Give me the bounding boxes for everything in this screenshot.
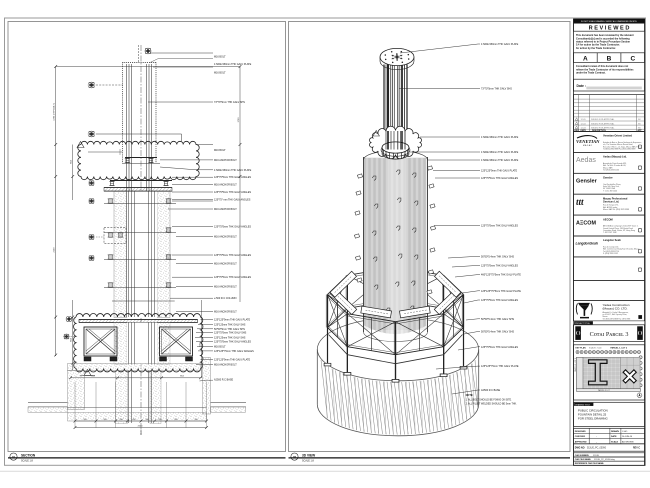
svg-text:DRAWN: DRAWN xyxy=(611,430,619,433)
svg-text:125*75*5mm THK GALV ANGLES: 125*75*5mm THK GALV ANGLES xyxy=(214,176,251,179)
svg-text:M16 ANCHOR BOLT: M16 ANCHOR BOLT xyxy=(214,285,237,288)
svg-text:12-04: 12-04 xyxy=(581,123,587,125)
svg-text:PARCEL 1, LOT 2: PARCEL 1, LOT 2 xyxy=(611,346,628,349)
svg-text:CAD FILE NAME:: CAD FILE NAME: xyxy=(575,458,592,461)
svg-text:4 SIDE 950mm THK GALV PLATE: 4 SIDE 950mm THK GALV PLATE xyxy=(214,169,252,172)
svg-text:Venetian Orient Limited: Venetian Orient Limited xyxy=(603,134,632,138)
svg-text:VENETIAN: VENETIAN xyxy=(576,139,600,144)
svg-text:F: (853) 2833 1532: F: (853) 2833 1532 xyxy=(603,253,618,255)
svg-text:M16 BOLT: M16 BOLT xyxy=(214,56,226,59)
svg-text:C.HO: C.HO xyxy=(622,431,628,433)
svg-text:4 SIDE 950mm THK GALV PLATE: 4 SIDE 950mm THK GALV PLATE xyxy=(481,159,519,162)
svg-text:125*75*5mm THK GALV ANGLES: 125*75*5mm THK GALV ANGLES xyxy=(214,226,251,229)
svg-text:125*75*5mm THK GALV ANGLES: 125*75*5mm THK GALV ANGLES xyxy=(481,264,518,267)
svg-text:2190: 2190 xyxy=(54,247,56,253)
svg-text:Aedas: Aedas xyxy=(576,157,596,164)
svg-text:APPROVED: APPROVED xyxy=(575,440,587,443)
svg-text:460*125*75*5mm THK GALV PLATE: 460*125*75*5mm THK GALV PLATE xyxy=(481,274,521,277)
svg-text:ISSUED FOR APPROVAL: ISSUED FOR APPROVAL xyxy=(591,122,615,125)
svg-text:AS SHOWN: AS SHOWN xyxy=(622,440,634,443)
svg-text:125*125*9mm THK GALV PLATE: 125*125*9mm THK GALV PLATE xyxy=(214,358,251,361)
svg-text:1760: 1760 xyxy=(238,117,240,123)
svg-text:125*125*9mm THK GALV PLATE: 125*125*9mm THK GALV PLATE xyxy=(481,169,518,172)
svg-text:Tel:(853) 2882 8888 Fax:(85: Tel:(853) 2882 8888 Fax:(853) 2882 8889 xyxy=(603,149,635,151)
svg-text:50*50*5.4mm THK GALV SHS: 50*50*5.4mm THK GALV SHS xyxy=(481,331,514,334)
svg-text:125*125*75mm THK GALV ANGLES: 125*125*75mm THK GALV ANGLES xyxy=(214,350,254,353)
svg-text:3D VIEW: 3D VIEW xyxy=(302,453,315,457)
svg-text:A2500 R.C BASE: A2500 R.C BASE xyxy=(481,389,500,392)
svg-text:125*75*5mm THK GALV ANGLES: 125*75*5mm THK GALV ANGLES xyxy=(214,191,251,194)
svg-text:AΞCOM: AΞCOM xyxy=(576,220,596,226)
svg-text:R E V I E W E D: R E V I E W E D xyxy=(589,25,630,31)
svg-text:ISSUED FOR APPROVAL: ISSUED FOR APPROVAL xyxy=(591,118,615,121)
svg-text:125*75*5mm THK GALV ANGLES: 125*75*5mm THK GALV ANGLES xyxy=(481,299,518,302)
svg-text:Date :: Date : xyxy=(577,84,586,88)
svg-text:LangdonSeah: LangdonSeah xyxy=(576,241,598,245)
svg-text:125*75* mm THK GALV ANGLES: 125*75* mm THK GALV ANGLES xyxy=(214,198,251,201)
svg-text:Aedas (Macau) Ltd.: Aedas (Macau) Ltd. xyxy=(603,155,627,159)
svg-text:under the Trade Contract.: under the Trade Contract. xyxy=(576,72,606,75)
svg-text:125*75*5mm THK GALV SHS: 125*75*5mm THK GALV SHS xyxy=(214,332,247,335)
svg-text:Gensler: Gensler xyxy=(576,179,598,185)
svg-text:73*73*5mm THK GALV SHS: 73*73*5mm THK GALV SHS xyxy=(214,101,245,104)
svg-text:4 SIDE 950mm THK GALV PLATE: 4 SIDE 950mm THK GALV PLATE xyxy=(214,63,252,66)
svg-text:AECOM: AECOM xyxy=(603,217,613,221)
svg-text:A2500 R.C BASE: A2500 R.C BASE xyxy=(214,378,233,381)
svg-text:T: 852 2587 1188: T: 852 2587 1188 xyxy=(603,232,616,234)
svg-text:ttt: ttt xyxy=(576,197,584,207)
svg-text:A: A xyxy=(583,55,588,62)
svg-text:50*50*5.4mm THK GALV SHS: 50*50*5.4mm THK GALV SHS xyxy=(481,318,514,321)
svg-text:125*125*75mm THK GALV PLATE: 125*125*75mm THK GALV PLATE xyxy=(481,365,519,368)
svg-text:4 SIDE 950mm THK GALV PLATE: 4 SIDE 950mm THK GALV PLATE xyxy=(481,136,519,139)
svg-text:4 SIDE 950mm THK GALV PLATE: 4 SIDE 950mm THK GALV PLATE xyxy=(481,151,519,154)
svg-text:(Macau) CO. LTD.: (Macau) CO. LTD. xyxy=(603,307,628,311)
svg-text:M16 BOLT: M16 BOLT xyxy=(214,72,226,75)
svg-text:T: 1 212 492 1400: T: 1 212 492 1400 xyxy=(603,190,617,192)
svg-text:1786 (TYP BOLT): 1786 (TYP BOLT) xyxy=(54,103,56,121)
svg-text:SCALE 1:8: SCALE 1:8 xyxy=(302,460,314,463)
svg-text:DO NOT SCALE DRAWING. VERIFY A: DO NOT SCALE DRAWING. VERIFY ALL DIMENSI… xyxy=(581,20,638,23)
svg-text:14-JUN-10: 14-JUN-10 xyxy=(622,436,633,438)
svg-text:511UE_PC_05090.dwg: 511UE_PC_05090.dwg xyxy=(594,459,615,461)
svg-text:2500: 2500 xyxy=(138,425,144,427)
svg-text:Services Ltd.: Services Ltd. xyxy=(603,200,619,204)
svg-text:1. ALL BOLT SHOULD BE FIXING O: 1. ALL BOLT SHOULD BE FIXING ON SITE. xyxy=(466,399,512,402)
svg-text:50*50*5mm THK GALV SHS: 50*50*5mm THK GALV SHS xyxy=(214,328,245,331)
svg-text:73*73*5mm THK GALV SHS: 73*73*5mm THK GALV SHS xyxy=(481,88,512,91)
svg-text:M16 BOLT: M16 BOLT xyxy=(214,346,226,349)
svg-text:M16 ANCHOR BOLT: M16 ANCHOR BOLT xyxy=(214,263,237,266)
svg-text:125*125*9mm THK GALV PLATE: 125*125*9mm THK GALV PLATE xyxy=(214,319,251,322)
svg-text:MACAO: MACAO xyxy=(583,144,593,147)
svg-text:125*125mm THK GALV SHS: 125*125mm THK GALV SHS xyxy=(214,323,246,326)
svg-text:Macau SAR Tel: (853) 2878 3: Macau SAR Tel: (853) 2878 3988 xyxy=(603,208,629,211)
svg-text:PARCEL 1, LOT 1: PARCEL 1, LOT 1 xyxy=(574,358,577,372)
svg-text:for action by the Trade C: for action by the Trade Contractor. xyxy=(576,47,616,50)
svg-text:125*75*5mm THK GALV ANGLES: 125*75*5mm THK GALV ANGLES xyxy=(214,341,251,344)
svg-text:DRAWING TITLE:: DRAWING TITLE: xyxy=(575,403,591,406)
svg-text:B: B xyxy=(607,55,612,62)
svg-text:FOR STEEL DRAWING: FOR STEEL DRAWING xyxy=(578,416,608,420)
svg-text:125*75*5mm THK GALV ANGLES: 125*75*5mm THK GALV ANGLES xyxy=(481,177,518,180)
svg-text:M16 ANCHOR BOLT: M16 ANCHOR BOLT xyxy=(214,364,237,367)
svg-text:125*75*5mm THK GALV ANGLES: 125*75*5mm THK GALV ANGLES xyxy=(481,225,518,228)
svg-text:CAD NUMBER:: CAD NUMBER: xyxy=(575,454,590,457)
svg-text:12-05: 12-05 xyxy=(581,119,587,121)
svg-text:Tel: (853) 2833 1133: Tel: (853) 2833 1133 xyxy=(603,170,619,172)
svg-text:125*75*5mm THK GALV ANGLES: 125*75*5mm THK GALV ANGLES xyxy=(481,346,518,349)
svg-text:SECTION: SECTION xyxy=(21,453,36,457)
svg-text:Gensler: Gensler xyxy=(603,176,613,180)
svg-text:511UE: 511UE xyxy=(593,455,600,457)
svg-text:M16 BOLT: M16 BOLT xyxy=(214,149,226,152)
svg-text:SCALE 1:8: SCALE 1:8 xyxy=(21,460,33,463)
svg-text:M16 ANCHOR BOLT: M16 ANCHOR BOLT xyxy=(214,184,237,187)
svg-text:4 SIDE 950mm THK GALV PLATE: 4 SIDE 950mm THK GALV PLATE xyxy=(481,43,519,46)
svg-text:DESIGNED: DESIGNED xyxy=(575,431,586,433)
svg-text:PARCEL 3 LOT: PARCEL 3 LOT xyxy=(598,389,610,392)
svg-text:M16 ANCHOR BOLT: M16 ANCHOR BOLT xyxy=(214,311,237,314)
svg-text:KEY PLAN: KEY PLAN xyxy=(576,346,587,349)
svg-text:REV C: REV C xyxy=(633,448,640,450)
svg-text:M16 ANCHOR BOLT: M16 ANCHOR BOLT xyxy=(214,159,237,162)
svg-text:REFERENCE CAD FILE NAME:: REFERENCE CAD FILE NAME: xyxy=(575,462,605,465)
svg-text:125*125*75*5mm THK GALV PLATE: 125*125*75*5mm THK GALV PLATE xyxy=(481,290,521,293)
svg-text:2. ALL FILLET WELDED SHOULD BE: 2. ALL FILLET WELDED SHOULD BE 5mm THK. xyxy=(466,403,518,406)
svg-text:SCALE: SCALE xyxy=(611,440,619,443)
svg-text:M16 ANCHOR BOLT: M16 ANCHOR BOLT xyxy=(214,208,237,211)
svg-text:SCALE 1:7,500: SCALE 1:7,500 xyxy=(589,346,601,349)
svg-text:Langdon Seah: Langdon Seah xyxy=(603,238,621,242)
svg-text:DWG NO: DWG NO xyxy=(575,448,585,450)
svg-text:Tel: (853) 2870 3838 Fax: 287: Tel: (853) 2870 3838 Fax: 2870 3938 xyxy=(603,318,631,320)
svg-text:ISSUED FOR APPROVAL: ISSUED FOR APPROVAL xyxy=(591,126,615,129)
svg-text:511UE_PC_05090: 511UE_PC_05090 xyxy=(587,448,607,450)
svg-text:NOTE:: NOTE: xyxy=(466,394,474,397)
svg-text:125*125mm THK GALV SHS: 125*125mm THK GALV SHS xyxy=(214,336,246,339)
svg-text:M16 ANCHOR BOLT: M16 ANCHOR BOLT xyxy=(214,236,237,239)
svg-text:C: C xyxy=(630,55,635,62)
svg-text:⌀ 500 R.C COLUMN: ⌀ 500 R.C COLUMN xyxy=(214,297,237,300)
svg-text:125*75*5mm THK GALV ANGLES: 125*75*5mm THK GALV ANGLES xyxy=(214,276,251,279)
svg-text:50*50*5.4mm THK GALV SHS: 50*50*5.4mm THK GALV SHS xyxy=(481,255,514,258)
svg-text:125*75*5mm THK GALV ANGLES: 125*75*5mm THK GALV ANGLES xyxy=(214,254,251,257)
svg-text:CHECKED: CHECKED xyxy=(575,436,586,438)
svg-text:Cᴏᴛᴀɪ Pᴀʀᴄᴇʟ 3: Cᴏᴛᴀɪ Pᴀʀᴄᴇʟ 3 xyxy=(590,331,629,338)
svg-text:DATE: DATE xyxy=(611,435,617,438)
